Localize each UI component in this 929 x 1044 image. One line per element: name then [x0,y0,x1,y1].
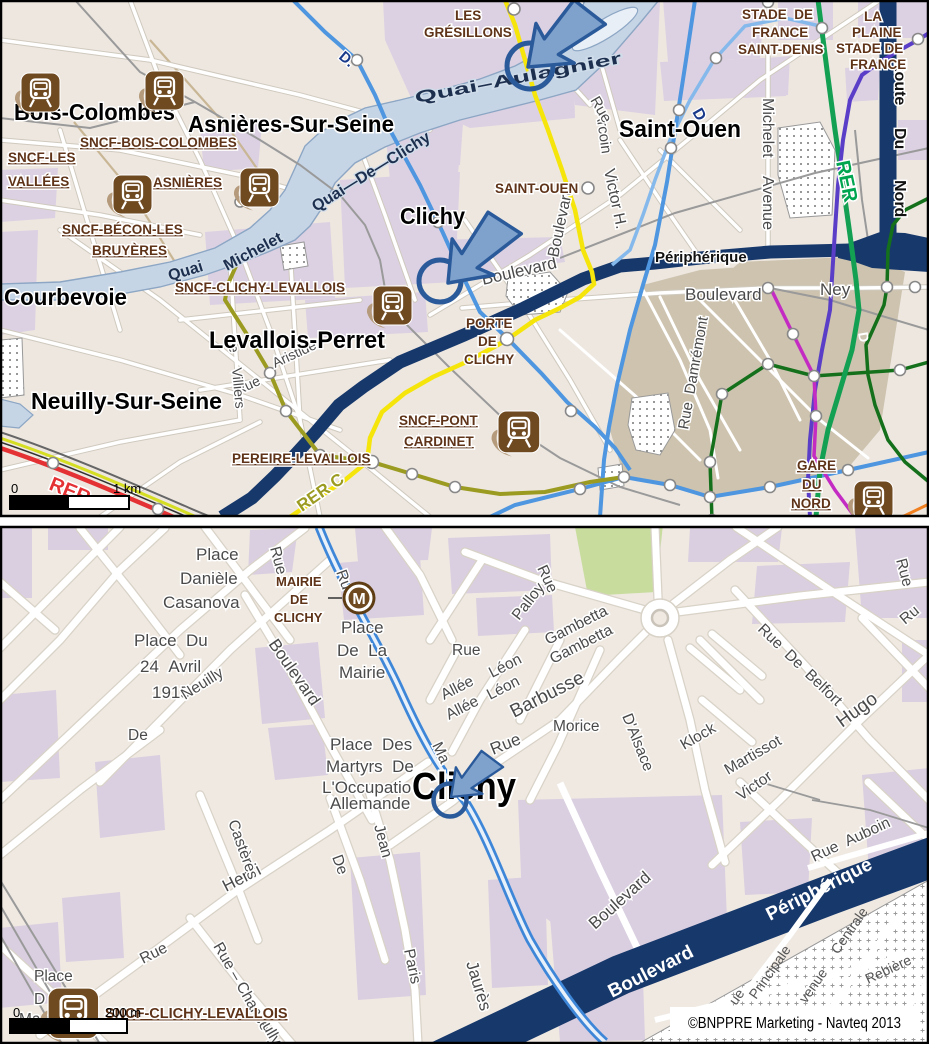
svg-text:Levallois-Perret: Levallois-Perret [209,327,385,354]
svg-text:CLICHY: CLICHY [274,610,323,625]
svg-text:Du: Du [891,128,908,149]
svg-text:STADE DE: STADE DE [742,7,813,22]
svg-text:Place: Place [341,618,384,637]
svg-text:MAIRIE: MAIRIE [276,574,322,589]
svg-text:Casanova: Casanova [163,593,240,612]
svg-text:FRANCE: FRANCE [850,57,906,72]
svg-text:0: 0 [11,481,18,496]
svg-text:1 km: 1 km [113,481,141,496]
svg-text:SNCF-PONT: SNCF-PONT [399,413,478,428]
svg-text:DE: DE [290,592,308,607]
svg-text:Place Des: Place Des [330,735,412,754]
svg-text:©BNPPRE Marketing - Navteq 201: ©BNPPRE Marketing - Navteq 2013 [688,1015,901,1032]
svg-text:GARE: GARE [797,458,836,473]
svg-text:Ney: Ney [820,280,851,299]
svg-text:Neuilly-Sur-Seine: Neuilly-Sur-Seine [31,388,222,414]
svg-text:ASNIÈRES: ASNIÈRES [153,175,222,190]
svg-text:SNCF-CLICHY-LEVALLOIS: SNCF-CLICHY-LEVALLOIS [175,280,345,295]
svg-text:CLICHY: CLICHY [464,352,514,367]
svg-text:M: M [352,591,365,608]
svg-text:LES: LES [455,8,481,23]
svg-text:Périphérique: Périphérique [655,249,747,266]
svg-text:D: D [34,991,45,1008]
svg-text:Morice: Morice [553,718,600,735]
svg-text:Rue: Rue [452,642,480,659]
svg-text:Saint-Ouen: Saint-Ouen [619,116,741,143]
svg-text:DE: DE [478,334,497,349]
svg-text:Place Du: Place Du [134,631,208,650]
svg-text:Asnières-Sur-Seine: Asnières-Sur-Seine [188,111,394,137]
svg-text:SNCF-LES: SNCF-LES [8,150,76,165]
svg-text:De La: De La [337,641,388,660]
svg-text:Boulevard: Boulevard [685,285,762,304]
svg-text:STADE DE: STADE DE [836,41,903,56]
svg-text:DU: DU [802,477,822,492]
svg-text:Martyrs De: Martyrs De [326,757,414,776]
svg-text:Michelet: Michelet [759,98,776,158]
svg-text:VALLÉES: VALLÉES [8,174,69,189]
svg-text:Place: Place [196,545,239,564]
svg-text:De: De [128,727,148,744]
svg-text:24 Avril: 24 Avril [140,657,201,676]
svg-text:PORTE: PORTE [466,316,513,331]
svg-text:CARDINET: CARDINET [404,434,475,449]
svg-text:BRUYÈRES: BRUYÈRES [92,243,167,258]
svg-text:Nord: Nord [891,180,908,217]
svg-text:200 m: 200 m [105,1005,141,1020]
svg-text:0: 0 [13,1005,20,1020]
svg-text:PLAINE: PLAINE [852,25,902,40]
svg-text:SAINT-DENIS: SAINT-DENIS [738,42,824,57]
svg-text:Danièle: Danièle [180,569,238,588]
svg-text:PEREIRE-LEVALLOIS: PEREIRE-LEVALLOIS [232,451,371,466]
svg-text:FRANCE: FRANCE [752,25,808,40]
svg-text:GRÉSILLONS: GRÉSILLONS [424,25,512,40]
svg-text:Courbevoie: Courbevoie [4,284,127,310]
svg-text:SNCF-BÉCON-LES: SNCF-BÉCON-LES [62,222,183,237]
svg-text:Place: Place [34,968,73,985]
svg-text:SAINT-OUEN: SAINT-OUEN [495,181,578,196]
svg-text:NORD: NORD [791,496,831,511]
svg-text:LA: LA [864,9,882,24]
svg-text:Allemande: Allemande [330,794,410,813]
svg-text:SNCF-BOIS-COLOMBES: SNCF-BOIS-COLOMBES [80,135,237,150]
svg-text:Avenue: Avenue [759,176,776,230]
svg-text:Mairie: Mairie [339,663,385,682]
svg-text:Clichy: Clichy [400,203,465,229]
